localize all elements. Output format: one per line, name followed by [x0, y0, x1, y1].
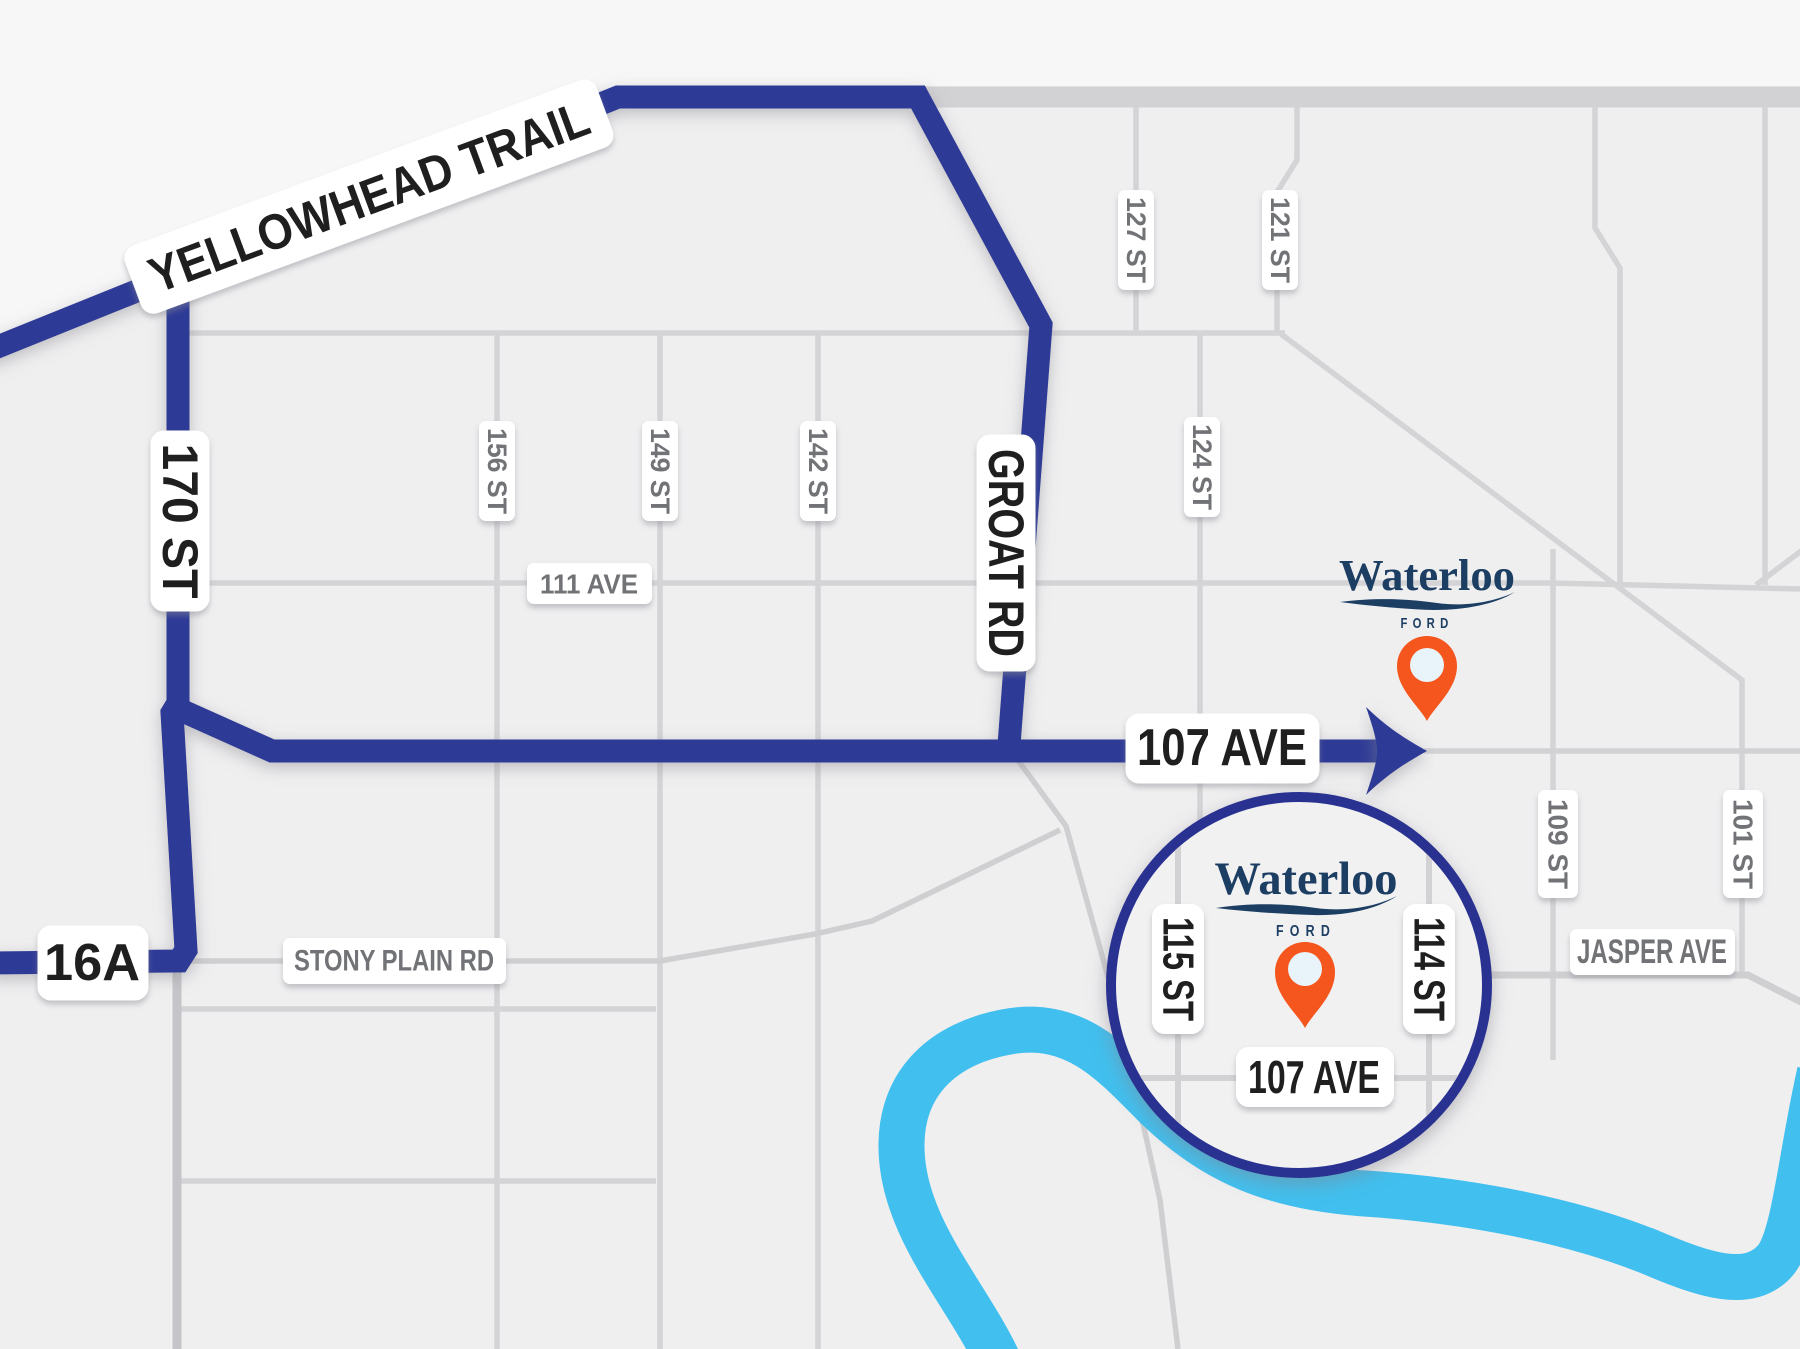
svg-text:FORD: FORD	[1276, 923, 1336, 940]
svg-text:111 AVE: 111 AVE	[540, 569, 638, 600]
svg-text:127 ST: 127 ST	[1121, 197, 1151, 283]
svg-text:124 ST: 124 ST	[1187, 424, 1217, 510]
svg-text:115 ST: 115 ST	[1154, 917, 1203, 1021]
svg-text:101 ST: 101 ST	[1728, 799, 1759, 889]
svg-text:Waterloo: Waterloo	[1215, 853, 1398, 905]
svg-text:16A: 16A	[44, 934, 140, 992]
svg-text:121 ST: 121 ST	[1265, 197, 1295, 283]
svg-text:JASPER AVE: JASPER AVE	[1577, 933, 1727, 971]
svg-text:FORD: FORD	[1401, 615, 1454, 632]
svg-text:STONY PLAIN RD: STONY PLAIN RD	[294, 945, 494, 978]
svg-text:142 ST: 142 ST	[803, 428, 833, 514]
svg-text:149 ST: 149 ST	[645, 428, 675, 514]
svg-text:114 ST: 114 ST	[1405, 917, 1454, 1021]
svg-text:170 ST: 170 ST	[152, 444, 208, 599]
svg-text:109 ST: 109 ST	[1543, 799, 1574, 889]
svg-text:107 AVE: 107 AVE	[1137, 719, 1307, 777]
svg-text:GROAT RD: GROAT RD	[978, 449, 1034, 657]
svg-text:107 AVE: 107 AVE	[1248, 1051, 1380, 1103]
svg-text:Waterloo: Waterloo	[1339, 551, 1515, 600]
svg-text:156 ST: 156 ST	[482, 428, 512, 514]
